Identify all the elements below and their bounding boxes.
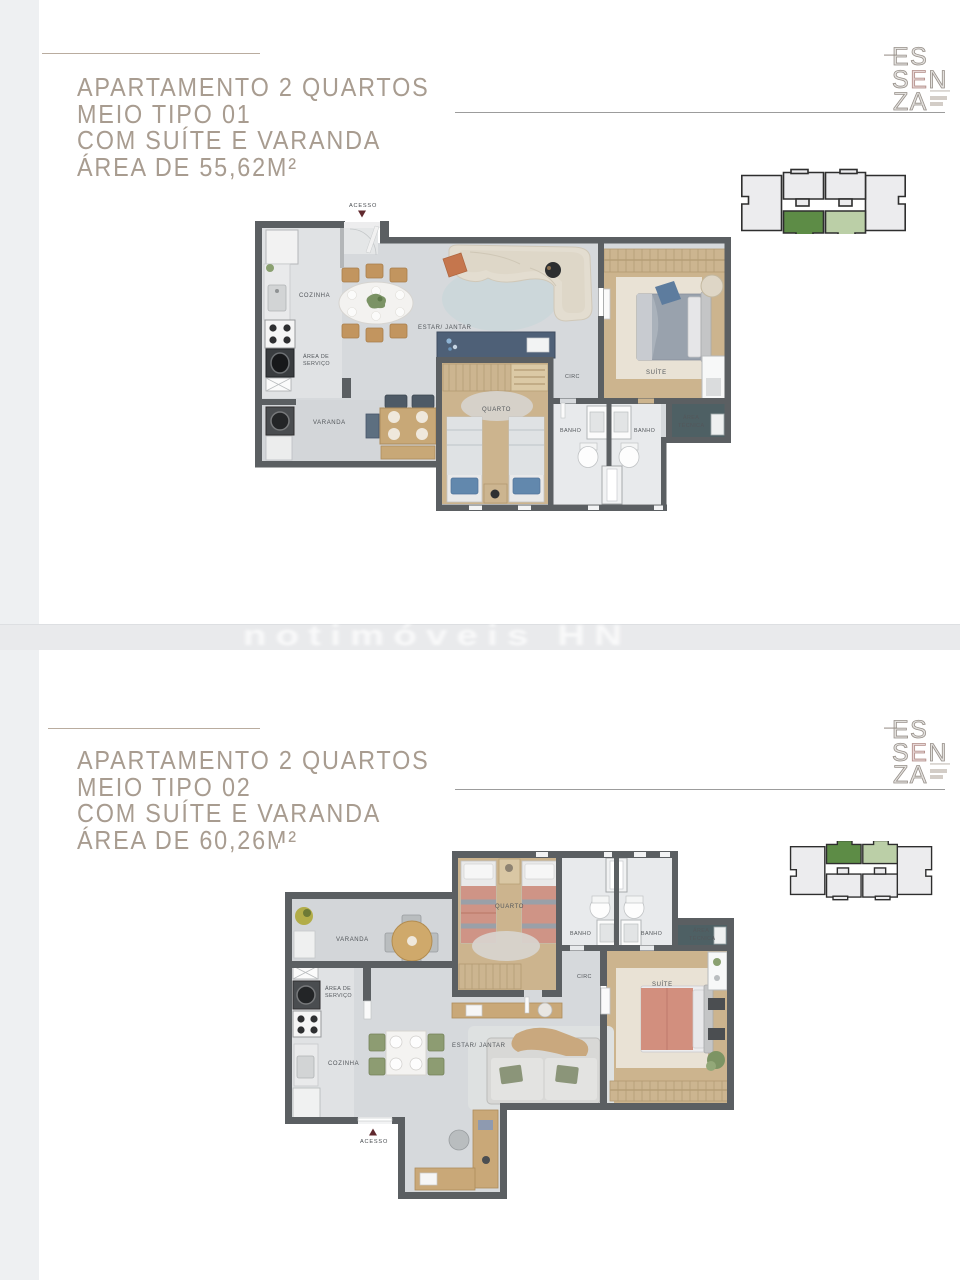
- svg-text:COZINHA: COZINHA: [328, 1061, 359, 1067]
- svg-text:ZA: ZA: [893, 761, 928, 785]
- svg-text:VARANDA: VARANDA: [313, 420, 346, 426]
- svg-text:ESTAR/ JANTAR: ESTAR/ JANTAR: [418, 325, 472, 331]
- svg-text:SUÍTE: SUÍTE: [646, 369, 667, 376]
- svg-text:ÁREA DE: ÁREA DE: [325, 985, 351, 992]
- svg-text:ÁREA: ÁREA: [683, 414, 699, 421]
- svg-text:BANHO: BANHO: [641, 931, 662, 937]
- svg-text:QUARTO: QUARTO: [495, 904, 524, 910]
- svg-text:SUÍTE: SUÍTE: [652, 981, 673, 988]
- svg-text:QUARTO: QUARTO: [482, 407, 511, 413]
- svg-text:SERVIÇO: SERVIÇO: [303, 361, 330, 367]
- svg-text:BANHO: BANHO: [570, 931, 591, 937]
- svg-text:ÁREA DE: ÁREA DE: [303, 353, 329, 360]
- svg-text:BANHO: BANHO: [634, 428, 655, 434]
- svg-text:ACESSO: ACESSO: [360, 1139, 388, 1145]
- svg-text:COZINHA: COZINHA: [299, 293, 330, 299]
- svg-text:ZA: ZA: [893, 88, 928, 112]
- svg-text:TÉCNICA: TÉCNICA: [678, 422, 704, 429]
- svg-text:CIRC: CIRC: [565, 374, 580, 380]
- svg-text:BANHO: BANHO: [560, 428, 581, 434]
- svg-text:VARANDA: VARANDA: [336, 937, 369, 943]
- svg-text:SERVIÇO: SERVIÇO: [325, 993, 352, 999]
- svg-text:ACESSO: ACESSO: [349, 203, 377, 209]
- svg-text:ÁREA: ÁREA: [693, 927, 709, 934]
- svg-text:TÉCNICA: TÉCNICA: [689, 935, 715, 942]
- svg-text:CIRC: CIRC: [577, 974, 592, 980]
- svg-text:ESTAR/ JANTAR: ESTAR/ JANTAR: [452, 1043, 506, 1049]
